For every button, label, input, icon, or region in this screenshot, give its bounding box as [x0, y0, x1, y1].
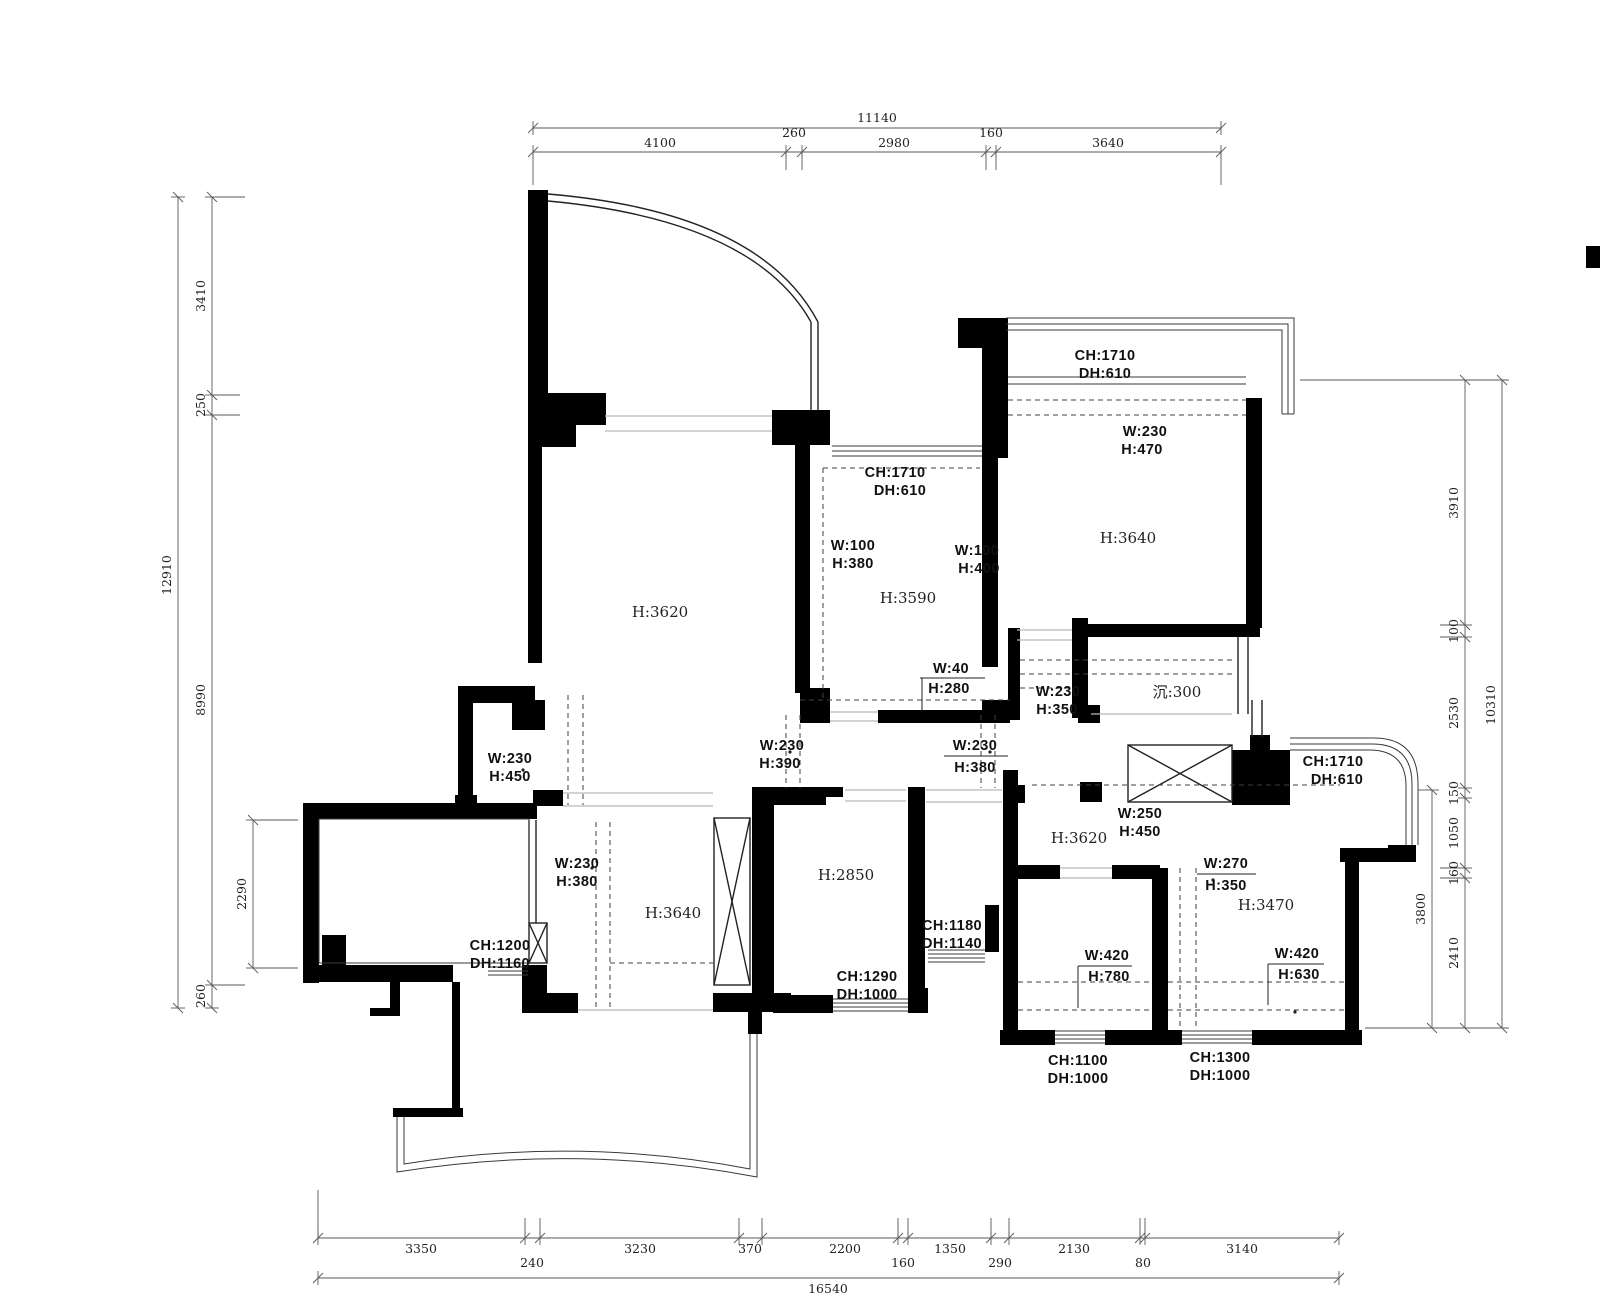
svg-text:W:250: W:250: [1118, 806, 1162, 822]
svg-text:CH:1710: CH:1710: [1075, 348, 1136, 364]
dim-label: 4100: [644, 135, 676, 150]
room-label: H:3470: [1238, 896, 1294, 914]
floor-plan-canvas: H:3620 H:3590 H:3640 沉:300 H:3640 H:2850…: [0, 0, 1600, 1309]
room-label: H:3620: [632, 603, 688, 621]
dim-label: 240: [520, 1255, 544, 1270]
dim-label: 2410: [1446, 937, 1461, 969]
dim-label: 3910: [1446, 487, 1461, 519]
svg-text:H:400: H:400: [958, 561, 1000, 577]
dim-label: 11140: [857, 110, 897, 125]
annotation: W:100H:380: [831, 538, 875, 572]
curved-window-nw: [548, 194, 818, 322]
dimension-chain-top: 11140 4100 260 2980 160 3640: [528, 110, 1226, 185]
dim-label: 1050: [1446, 817, 1461, 849]
room-labels: H:3620 H:3590 H:3640 沉:300 H:3640 H:2850…: [632, 529, 1294, 922]
svg-text:DH:1000: DH:1000: [1190, 1068, 1251, 1084]
dim-label: 10310: [1483, 685, 1498, 725]
annotation: CH:1300DH:1000: [1190, 1050, 1251, 1084]
annotation: W:40H:280: [928, 661, 970, 697]
svg-text:CH:1710: CH:1710: [865, 465, 926, 481]
dim-label: 2980: [878, 135, 910, 150]
dim-label: 80: [1135, 1255, 1151, 1270]
annotation: CH:1200DH:1160: [470, 938, 531, 972]
svg-text:CH:1100: CH:1100: [1048, 1053, 1108, 1069]
dim-label: 3640: [1092, 135, 1124, 150]
annotation: CH:1710DH:610: [1075, 348, 1136, 382]
annotation: CH:1100DH:1000: [1048, 1053, 1109, 1087]
annotation: W:230H:380: [953, 738, 997, 776]
room-label: H:2850: [818, 866, 874, 884]
svg-text:W:420: W:420: [1085, 948, 1129, 964]
dim-label: 16540: [808, 1281, 848, 1296]
dim-label: 2130: [1058, 1241, 1090, 1256]
svg-text:H:350: H:350: [1205, 878, 1247, 894]
dim-label: 370: [738, 1241, 762, 1256]
dim-label: 2290: [234, 878, 249, 910]
annotation: CH:1710DH:610: [865, 465, 927, 499]
svg-text:H:380: H:380: [832, 556, 874, 572]
svg-text:W:100: W:100: [831, 538, 875, 554]
annotation: W:230H:450: [488, 751, 532, 785]
svg-text:W:230: W:230: [953, 738, 997, 754]
dim-label: 12910: [159, 555, 174, 595]
svg-text:CH:1290: CH:1290: [837, 969, 898, 985]
room-label: H:3620: [1051, 829, 1107, 847]
annotation: W:230H:470: [1121, 424, 1167, 458]
dim-label: 2530: [1446, 697, 1461, 729]
svg-text:H:380: H:380: [556, 874, 598, 890]
svg-text:H:350: H:350: [1036, 702, 1078, 718]
annotation: CH:1290DH:1000: [837, 969, 898, 1003]
svg-text:H:450: H:450: [489, 769, 531, 785]
room-label: 沉:300: [1153, 683, 1202, 701]
dim-label: 160: [891, 1255, 915, 1270]
windows-layer: [319, 194, 1418, 1177]
room-label: H:3640: [645, 904, 701, 922]
svg-text:W:40: W:40: [933, 661, 969, 677]
dim-label: 150: [1446, 781, 1461, 805]
svg-text:DH:1000: DH:1000: [1048, 1071, 1109, 1087]
svg-text:CH:1200: CH:1200: [470, 938, 531, 954]
svg-text:W:100: W:100: [955, 543, 999, 559]
svg-text:H:450: H:450: [1119, 824, 1161, 840]
svg-text:W:420: W:420: [1275, 946, 1319, 962]
svg-text:H:390: H:390: [759, 756, 801, 772]
svg-text:W:230: W:230: [488, 751, 532, 767]
svg-text:W:230: W:230: [1123, 424, 1167, 440]
dim-label: 260: [193, 984, 208, 1008]
svg-text:H:630: H:630: [1278, 967, 1320, 983]
dimension-chain-right: 10310 3910 100 2530 150 1050 160 2410 38…: [1300, 375, 1509, 1033]
dimension-chain-bottom: 3350 240 3230 370 2200 160 1350 290 2130…: [313, 1190, 1344, 1296]
svg-text:W:270: W:270: [1204, 856, 1248, 872]
svg-text:DH:610: DH:610: [1079, 366, 1131, 382]
dim-label: 160: [979, 125, 1003, 140]
xbox-column-sw: [529, 923, 547, 963]
xbox-door-center: [714, 818, 750, 985]
dim-label: 3230: [624, 1241, 656, 1256]
svg-text:DH:610: DH:610: [874, 483, 926, 499]
svg-text:DH:1160: DH:1160: [470, 956, 530, 972]
dim-label: 2200: [829, 1241, 861, 1256]
svg-text:W:230: W:230: [760, 738, 804, 754]
dim-label: 3140: [1226, 1241, 1258, 1256]
edge-artifact: [1586, 246, 1600, 268]
room-label: H:3640: [1100, 529, 1156, 547]
svg-text:DH:610: DH:610: [1311, 772, 1363, 788]
room-label: H:3590: [880, 589, 936, 607]
svg-text:H:280: H:280: [928, 681, 970, 697]
dim-label: 250: [193, 393, 208, 417]
dim-label: 1350: [934, 1241, 966, 1256]
dim-label: 100: [1446, 619, 1461, 643]
svg-text:W:230: W:230: [1036, 684, 1080, 700]
annotation: W:270H:350: [1204, 856, 1248, 894]
svg-text:H:470: H:470: [1121, 442, 1163, 458]
xbox-beam-e: [1128, 745, 1232, 802]
annotation: W:250H:450: [1118, 806, 1162, 840]
annotation: W:230H:390: [759, 738, 804, 772]
dimension-chain-left: 12910 3410 250 8990 260 2290: [159, 192, 298, 1013]
svg-text:CH:1300: CH:1300: [1190, 1050, 1251, 1066]
window-dining-top: [832, 446, 982, 456]
dim-label: 3350: [405, 1241, 437, 1256]
annotation: CH:1710DH:610: [1303, 754, 1364, 788]
svg-text:CH:1710: CH:1710: [1303, 754, 1364, 770]
curved-balcony-s: [397, 1034, 757, 1177]
svg-text:W:230: W:230: [555, 856, 599, 872]
dim-label: 260: [782, 125, 806, 140]
svg-text:H:780: H:780: [1088, 969, 1130, 985]
dim-label: 160: [1446, 861, 1461, 885]
dim-label: 8990: [193, 684, 208, 716]
svg-text:H:380: H:380: [954, 760, 996, 776]
svg-text:DH:1140: DH:1140: [922, 936, 982, 952]
annotation: CH:1180DH:1140: [922, 918, 982, 952]
svg-text:DH:1000: DH:1000: [837, 987, 898, 1003]
dim-label: 3410: [193, 280, 208, 312]
floor-plan-drawing: H:3620 H:3590 H:3640 沉:300 H:3640 H:2850…: [0, 0, 1600, 1309]
svg-text:CH:1180: CH:1180: [922, 918, 982, 934]
dim-label: 290: [988, 1255, 1012, 1270]
annotation: W:230H:380: [555, 856, 599, 890]
dim-label: 3800: [1413, 893, 1428, 925]
